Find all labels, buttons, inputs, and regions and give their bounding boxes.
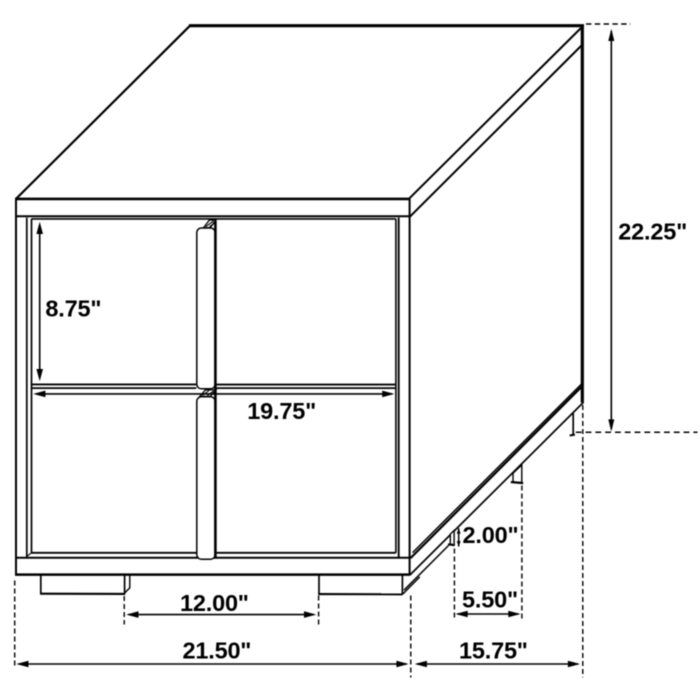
svg-text:8.75": 8.75" bbox=[45, 295, 101, 321]
svg-text:12.00": 12.00" bbox=[180, 590, 249, 616]
svg-text:21.50": 21.50" bbox=[183, 638, 252, 664]
svg-text:19.75": 19.75" bbox=[247, 398, 316, 424]
svg-text:5.50": 5.50" bbox=[462, 586, 518, 612]
svg-text:22.25": 22.25" bbox=[618, 219, 687, 245]
svg-text:15.75": 15.75" bbox=[459, 638, 528, 664]
svg-text:2.00": 2.00" bbox=[463, 522, 519, 548]
